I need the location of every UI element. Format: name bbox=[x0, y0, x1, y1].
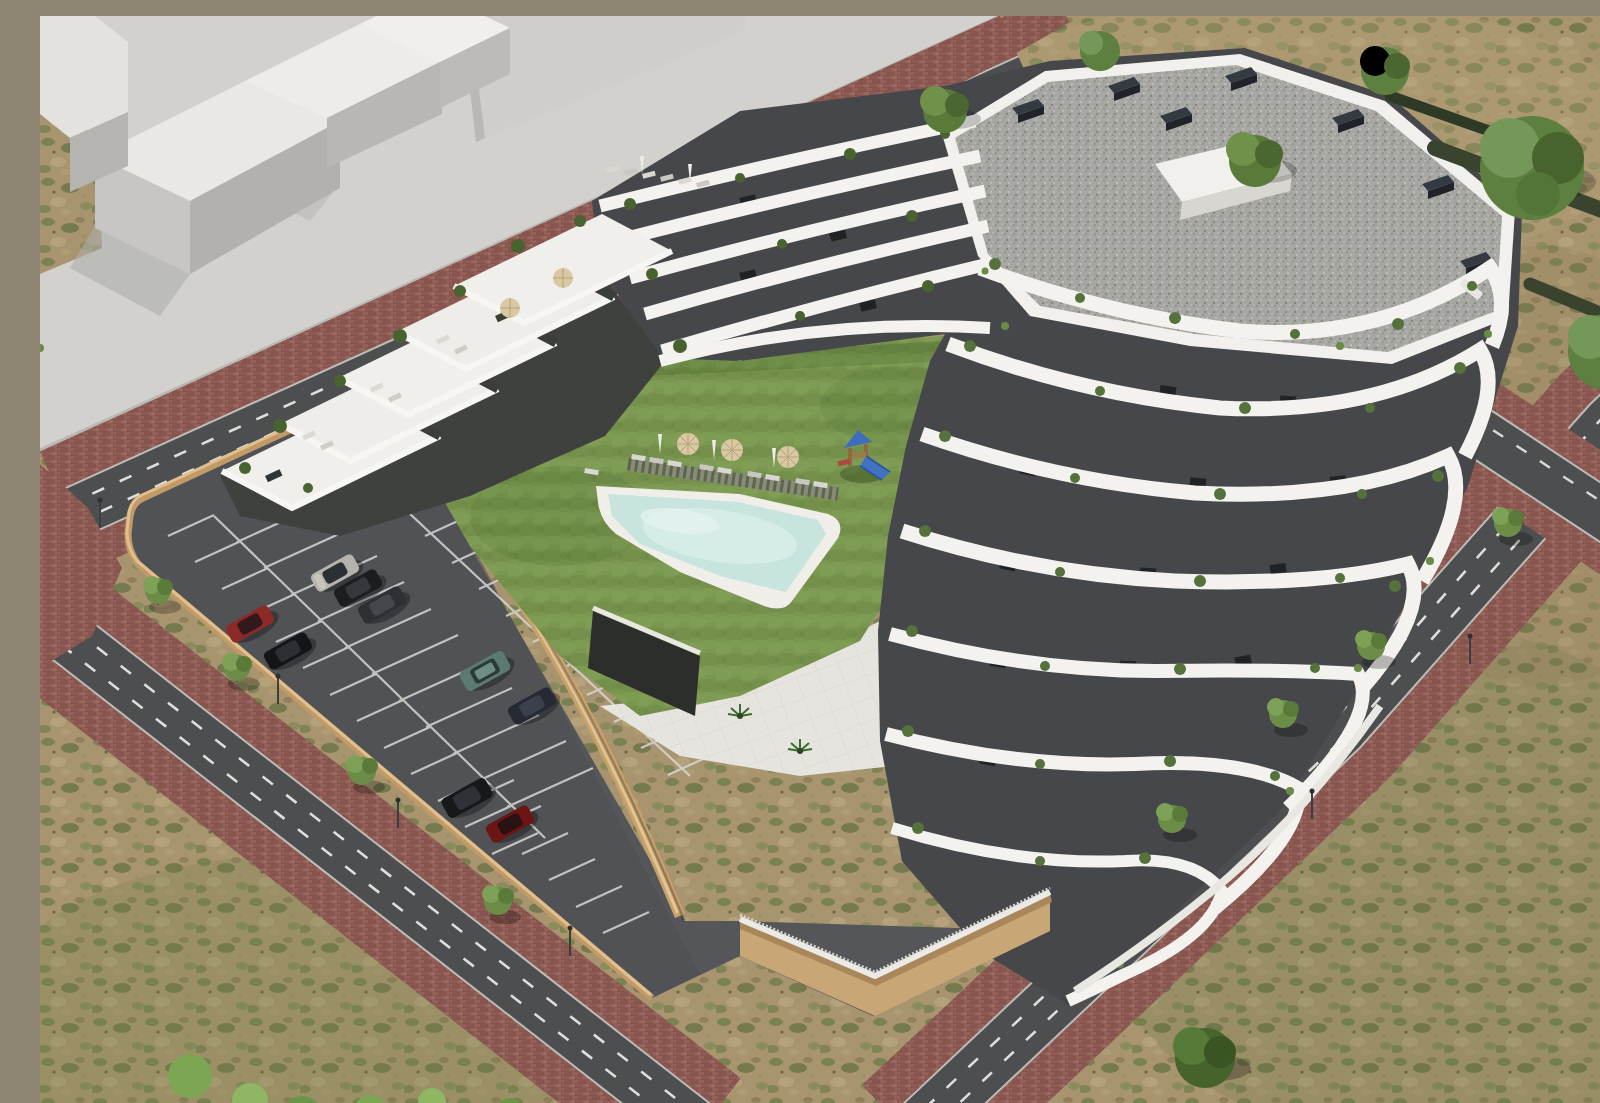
parasol-open bbox=[721, 439, 743, 461]
architectural-rendering: Aerial 3D architectural rendering of a m… bbox=[40, 16, 1600, 1103]
rendering-canvas bbox=[40, 16, 1600, 1103]
parasol-open bbox=[677, 433, 699, 455]
parasol-open bbox=[777, 446, 799, 468]
